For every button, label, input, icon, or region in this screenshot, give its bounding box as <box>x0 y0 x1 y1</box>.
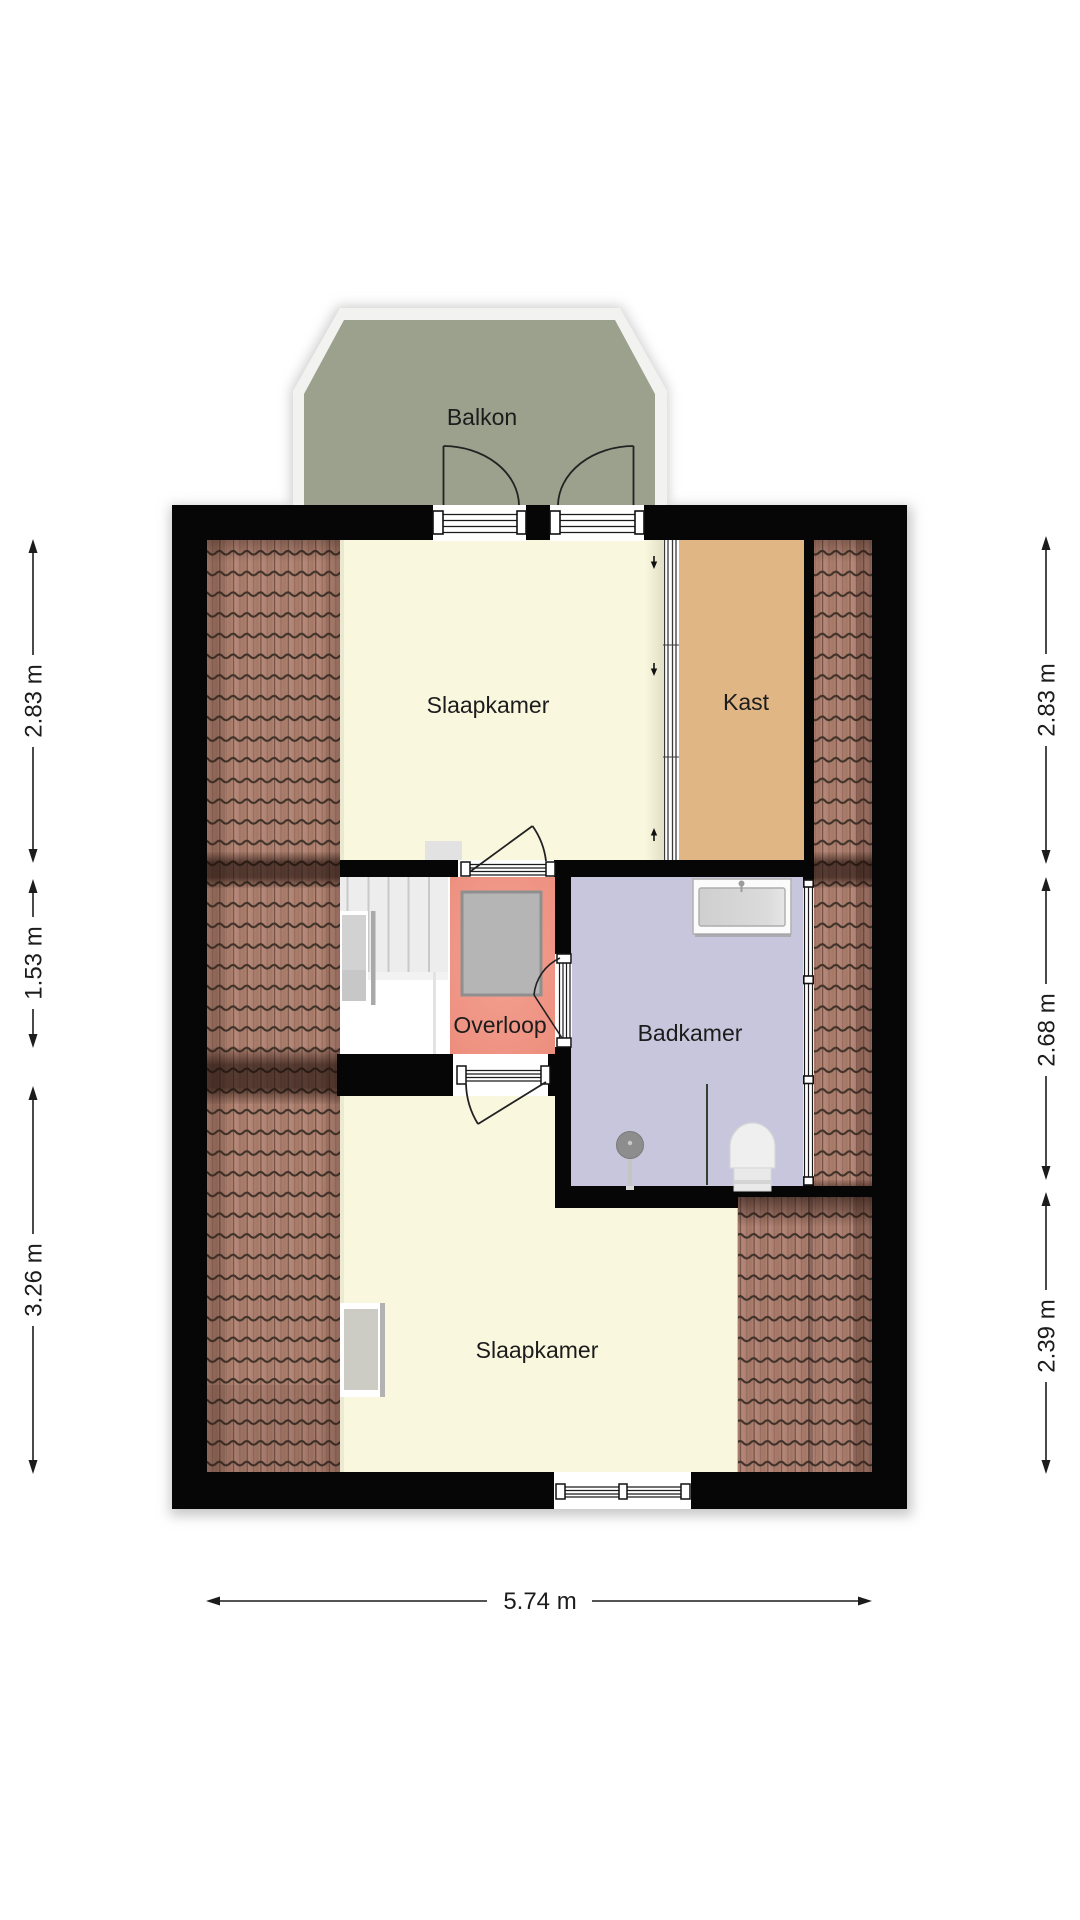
svg-text:Overloop: Overloop <box>453 1012 546 1038</box>
svg-text:Slaapkamer: Slaapkamer <box>476 1337 599 1363</box>
svg-text:Balkon: Balkon <box>447 404 517 430</box>
svg-text:Slaapkamer: Slaapkamer <box>427 692 550 718</box>
svg-text:2.83 m: 2.83 m <box>21 664 48 737</box>
svg-text:Badkamer: Badkamer <box>638 1020 743 1046</box>
svg-text:Kast: Kast <box>723 689 770 715</box>
svg-text:5.74 m: 5.74 m <box>503 1588 576 1615</box>
svg-text:2.39 m: 2.39 m <box>1034 1299 1061 1372</box>
svg-text:2.83 m: 2.83 m <box>1034 663 1061 736</box>
svg-text:3.26 m: 3.26 m <box>21 1243 48 1316</box>
svg-text:1.53 m: 1.53 m <box>21 926 48 999</box>
svg-text:2.68 m: 2.68 m <box>1034 993 1061 1066</box>
